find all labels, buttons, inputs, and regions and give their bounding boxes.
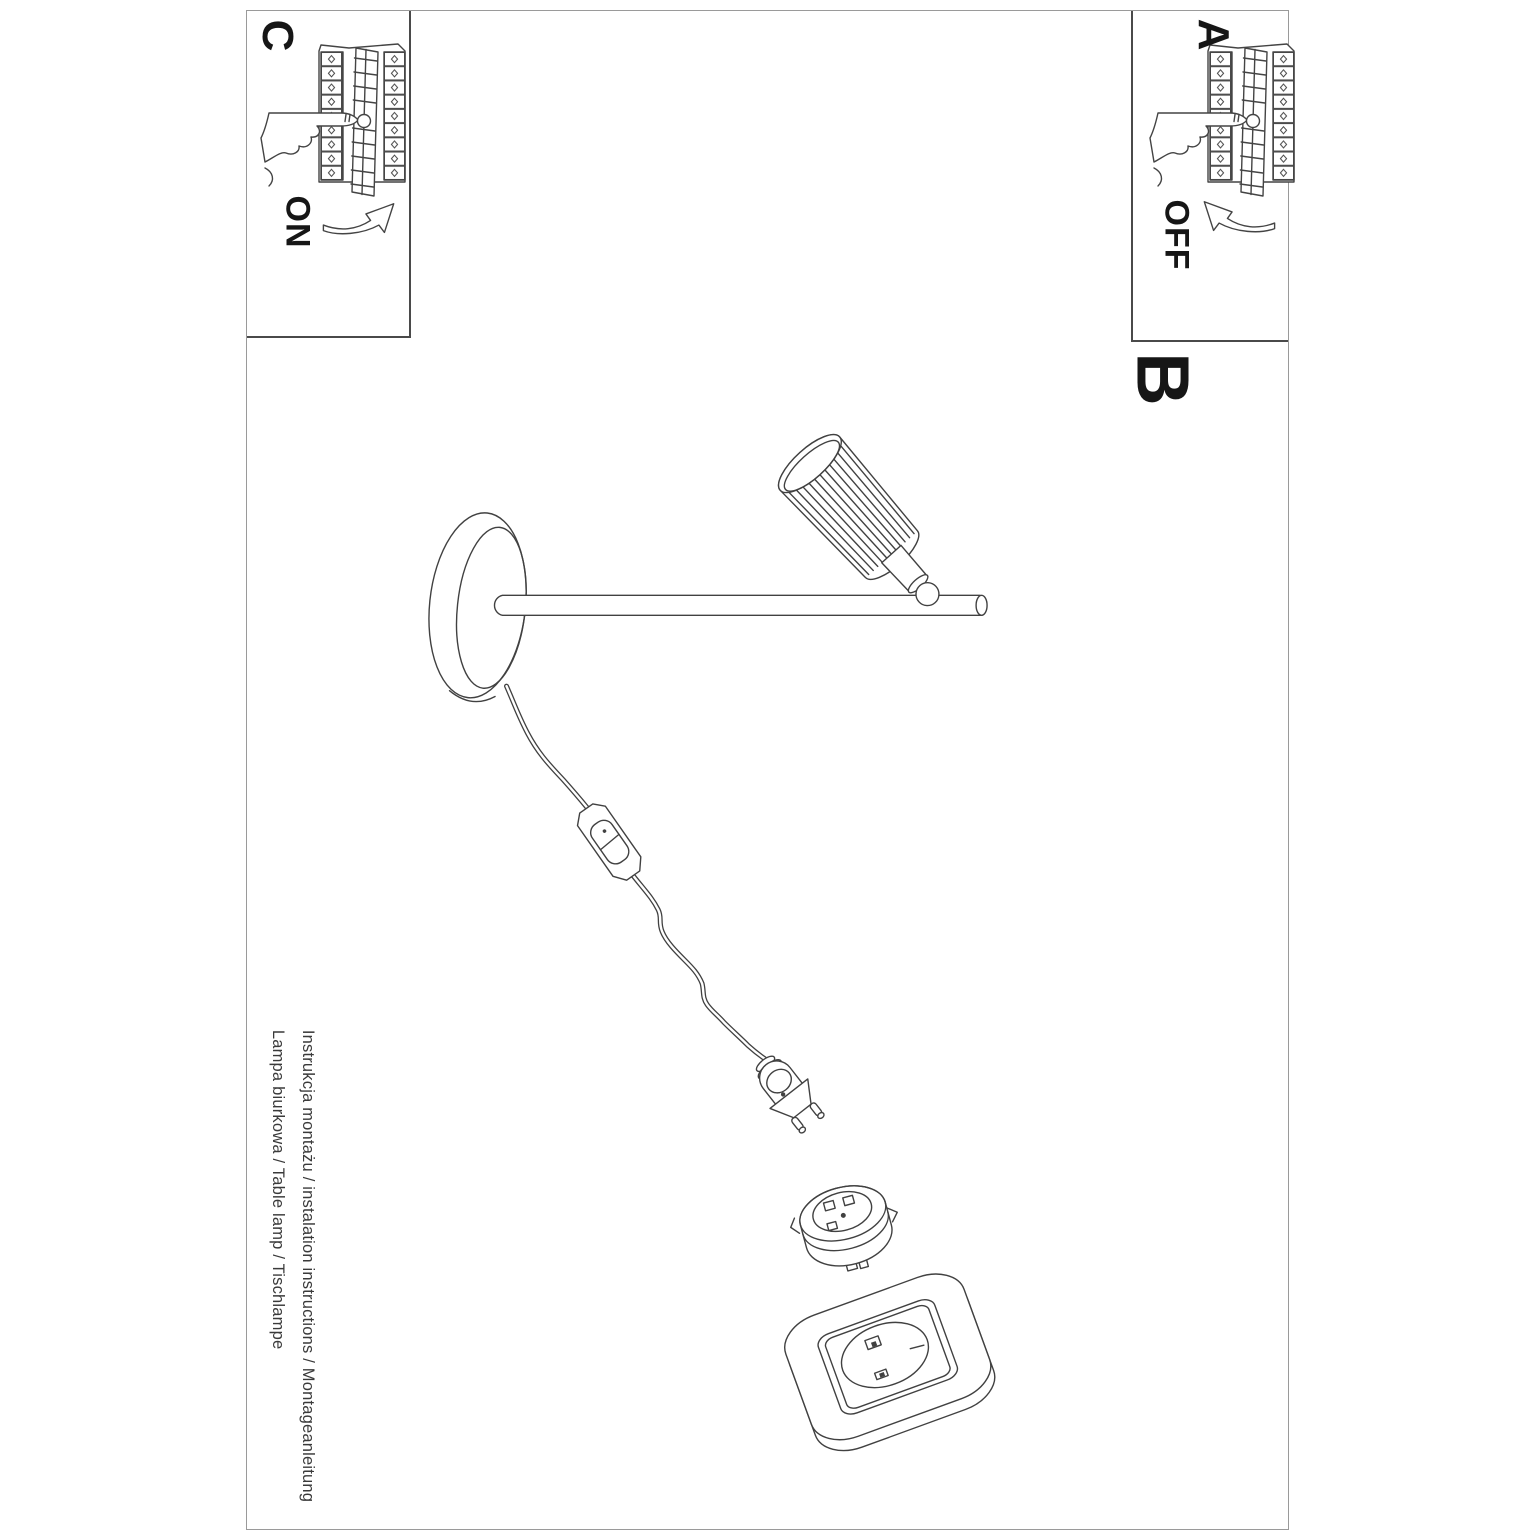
scan-background: C A B ON OFF <box>0 0 1540 1540</box>
footer-line-2: Lampa biurkowa / Table lamp / Tischlampe <box>263 1030 293 1502</box>
power-cord <box>507 686 778 1067</box>
footer-text: Instrukcja montażu / instalation instruc… <box>263 1030 323 1502</box>
socket-insert-module <box>784 1175 909 1284</box>
power-plug <box>744 1046 832 1140</box>
lamp-assembly-drawing <box>247 11 1288 1529</box>
wall-socket <box>777 1264 1003 1461</box>
footer-line-1: Instrukcja montażu / instalation instruc… <box>293 1030 323 1502</box>
cord-switch <box>572 799 647 886</box>
instruction-sheet: C A B ON OFF <box>246 10 1289 1530</box>
lamp-rod <box>494 595 987 615</box>
